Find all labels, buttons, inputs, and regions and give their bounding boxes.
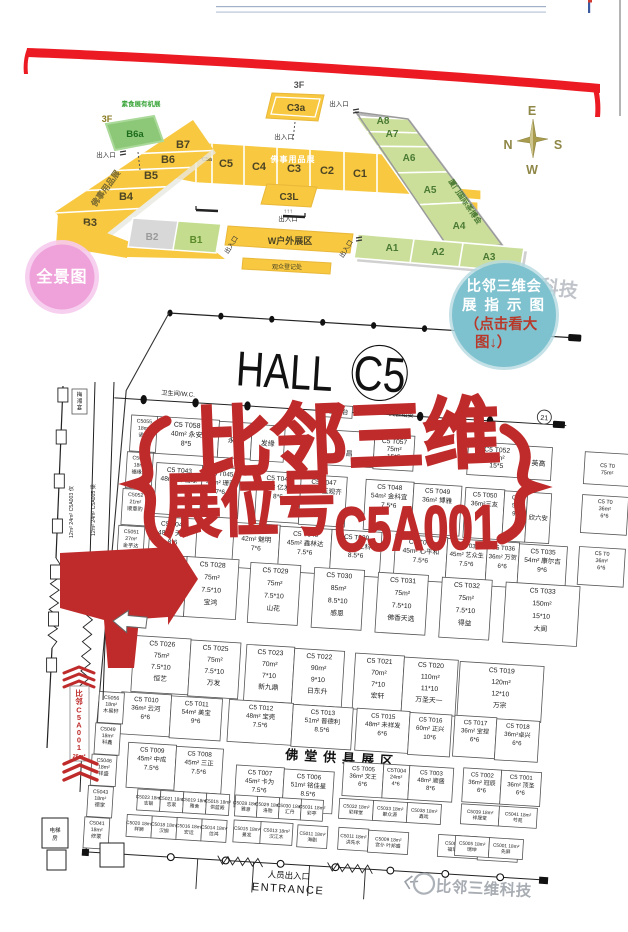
svg-text:75m²: 75m² bbox=[458, 595, 475, 603]
svg-text:7.5*10: 7.5*10 bbox=[204, 668, 224, 676]
svg-text:出入口: 出入口 bbox=[274, 132, 294, 141]
svg-text:8.5*10: 8.5*10 bbox=[328, 597, 348, 605]
svg-text:C5052: C5052 bbox=[128, 492, 144, 499]
svg-text:11*10: 11*10 bbox=[421, 685, 439, 693]
svg-text:8.5*6: 8.5*6 bbox=[314, 726, 330, 734]
svg-text:C5055: C5055 bbox=[136, 418, 152, 425]
svg-text:6*6: 6*6 bbox=[140, 714, 150, 722]
svg-text:6*6: 6*6 bbox=[600, 513, 609, 519]
svg-text:21: 21 bbox=[540, 415, 548, 422]
svg-text:C1: C1 bbox=[353, 168, 367, 180]
svg-text:梅: 梅 bbox=[77, 391, 83, 399]
svg-text:7.5*10: 7.5*10 bbox=[201, 586, 221, 594]
svg-text:12m² 24m² C5A005 梁: 12m² 24m² C5A005 梁 bbox=[89, 484, 97, 536]
svg-text:75m²: 75m² bbox=[204, 574, 221, 582]
svg-text:75m²: 75m² bbox=[267, 580, 284, 588]
svg-text:7.5*10: 7.5*10 bbox=[151, 664, 171, 672]
svg-text:7.5*10: 7.5*10 bbox=[455, 607, 475, 615]
svg-text:70m²: 70m² bbox=[371, 669, 388, 677]
svg-text:8.5*6: 8.5*6 bbox=[300, 791, 316, 799]
svg-text:湘: 湘 bbox=[77, 397, 83, 405]
svg-text:宴: 宴 bbox=[77, 404, 83, 412]
svg-text:4*6: 4*6 bbox=[391, 781, 399, 787]
svg-text:9*6: 9*6 bbox=[537, 567, 548, 575]
svg-text:9*6: 9*6 bbox=[191, 718, 201, 726]
svg-text:A8: A8 bbox=[377, 116, 390, 127]
svg-text:W户外展区: W户外展区 bbox=[268, 235, 313, 246]
svg-text:C5: C5 bbox=[219, 158, 233, 170]
svg-text:15*10: 15*10 bbox=[532, 613, 550, 621]
svg-text:展 指 示 图: 展 指 示 图 bbox=[462, 296, 546, 314]
svg-text:↑↑↑: ↑↑↑ bbox=[284, 209, 293, 215]
svg-text:比邻三维会: 比邻三维会 bbox=[467, 277, 542, 295]
svg-text:（点击看大: （点击看大 bbox=[465, 315, 538, 333]
svg-text:A5: A5 bbox=[424, 185, 437, 196]
svg-text:C5A001: C5A001 bbox=[334, 493, 498, 565]
svg-text:电梯: 电梯 bbox=[49, 826, 61, 834]
svg-text:A2: A2 bbox=[432, 247, 445, 258]
svg-text:7.5*6: 7.5*6 bbox=[251, 787, 267, 795]
svg-text:C5 T0: C5 T0 bbox=[598, 499, 613, 506]
svg-text:C5051: C5051 bbox=[124, 529, 140, 536]
svg-text:7.5*10: 7.5*10 bbox=[264, 592, 284, 600]
svg-text:7.5*6: 7.5*6 bbox=[252, 721, 268, 729]
svg-text:27m²: 27m² bbox=[125, 536, 137, 543]
svg-text:出入口: 出入口 bbox=[96, 150, 116, 159]
svg-text:C3L: C3L bbox=[280, 192, 299, 203]
svg-text:A6: A6 bbox=[403, 153, 416, 164]
svg-text:75m²: 75m² bbox=[207, 656, 224, 664]
svg-text:9*10: 9*10 bbox=[311, 676, 326, 684]
svg-text:7*10: 7*10 bbox=[371, 681, 386, 689]
svg-text:90m²: 90m² bbox=[311, 665, 328, 673]
svg-text:75m²: 75m² bbox=[154, 652, 171, 660]
svg-text:6*6: 6*6 bbox=[477, 788, 487, 795]
svg-text:C5 T018: C5 T018 bbox=[506, 723, 531, 731]
svg-text:36m²卓兴: 36m²卓兴 bbox=[504, 730, 531, 740]
svg-text:7*6: 7*6 bbox=[251, 545, 262, 553]
svg-text:房: 房 bbox=[52, 834, 58, 842]
svg-text:6*6: 6*6 bbox=[516, 790, 526, 797]
svg-text:7.5*6: 7.5*6 bbox=[297, 549, 313, 557]
svg-text:6*6: 6*6 bbox=[470, 736, 480, 744]
svg-text:85m²: 85m² bbox=[331, 585, 348, 593]
svg-text:8*6: 8*6 bbox=[426, 786, 436, 793]
svg-text:图↓）: 图↓） bbox=[475, 333, 511, 351]
svg-text:B1: B1 bbox=[190, 235, 203, 246]
svg-text:70m²: 70m² bbox=[262, 661, 279, 669]
svg-text:120m²: 120m² bbox=[491, 679, 511, 687]
svg-text:C5 T011: C5 T011 bbox=[185, 700, 210, 708]
svg-text:75m²: 75m² bbox=[601, 470, 614, 477]
svg-text:万圣天一: 万圣天一 bbox=[415, 695, 443, 705]
svg-text:C5 T0: C5 T0 bbox=[594, 551, 609, 558]
svg-text:C5 T017: C5 T017 bbox=[464, 719, 489, 727]
svg-text:3F: 3F bbox=[294, 80, 305, 90]
svg-text:观众登记处: 观众登记处 bbox=[272, 263, 302, 271]
svg-text:12m² 24m² C5A003 仅: 12m² 24m² C5A003 仅 bbox=[67, 485, 75, 538]
svg-text:展位号: 展位号 bbox=[163, 465, 336, 546]
svg-text:3F: 3F bbox=[102, 114, 113, 124]
svg-text:A1: A1 bbox=[386, 243, 399, 254]
svg-text:B2: B2 bbox=[146, 232, 159, 243]
svg-text:36m²: 36m² bbox=[595, 558, 608, 565]
svg-text:C3a: C3a bbox=[287, 103, 306, 114]
svg-text:75m²: 75m² bbox=[394, 590, 411, 598]
svg-text:C4: C4 bbox=[252, 161, 267, 173]
svg-text:110m²: 110m² bbox=[421, 673, 441, 681]
svg-text:HALL: HALL bbox=[235, 342, 335, 402]
svg-text:B7: B7 bbox=[176, 139, 190, 151]
svg-text:150m²: 150m² bbox=[532, 600, 552, 608]
svg-text:A4: A4 bbox=[453, 221, 466, 232]
svg-text:6*6: 6*6 bbox=[512, 740, 522, 748]
svg-text:C5 T0: C5 T0 bbox=[600, 463, 615, 470]
svg-text:6*6: 6*6 bbox=[377, 730, 387, 738]
svg-text:素食展有机展: 素食展有机展 bbox=[122, 99, 162, 108]
svg-text:7.5*6: 7.5*6 bbox=[191, 768, 207, 776]
svg-text:A7: A7 bbox=[386, 129, 399, 140]
svg-text:6*6: 6*6 bbox=[597, 565, 606, 571]
svg-text:21m²: 21m² bbox=[129, 499, 141, 506]
svg-text:C3: C3 bbox=[287, 163, 301, 175]
svg-text:佛事用品展: 佛事用品展 bbox=[270, 154, 316, 164]
svg-text:6*6: 6*6 bbox=[497, 563, 507, 571]
svg-text:B4: B4 bbox=[119, 191, 134, 203]
svg-text:7.5*10: 7.5*10 bbox=[392, 602, 412, 610]
svg-text:出入口: 出入口 bbox=[329, 99, 349, 108]
svg-text:12*10: 12*10 bbox=[491, 690, 509, 698]
svg-text:8*5: 8*5 bbox=[181, 440, 192, 448]
svg-text:7.5*6: 7.5*6 bbox=[144, 764, 160, 772]
svg-text:W: W bbox=[526, 163, 538, 177]
svg-text:B5: B5 bbox=[144, 170, 158, 182]
svg-text:B6a: B6a bbox=[126, 129, 144, 140]
svg-text:N: N bbox=[503, 138, 512, 152]
svg-text:36m²: 36m² bbox=[598, 506, 611, 513]
svg-text:C5 T016: C5 T016 bbox=[419, 716, 444, 724]
svg-text:7*10: 7*10 bbox=[262, 672, 277, 680]
svg-text:10*6: 10*6 bbox=[423, 734, 437, 742]
svg-text:6*6: 6*6 bbox=[358, 782, 368, 789]
svg-text:B6: B6 bbox=[161, 154, 175, 166]
svg-text:C2: C2 bbox=[320, 165, 334, 177]
svg-text:全景图: 全景图 bbox=[35, 267, 87, 286]
svg-text:E: E bbox=[528, 104, 536, 118]
svg-text:S: S bbox=[554, 138, 562, 152]
